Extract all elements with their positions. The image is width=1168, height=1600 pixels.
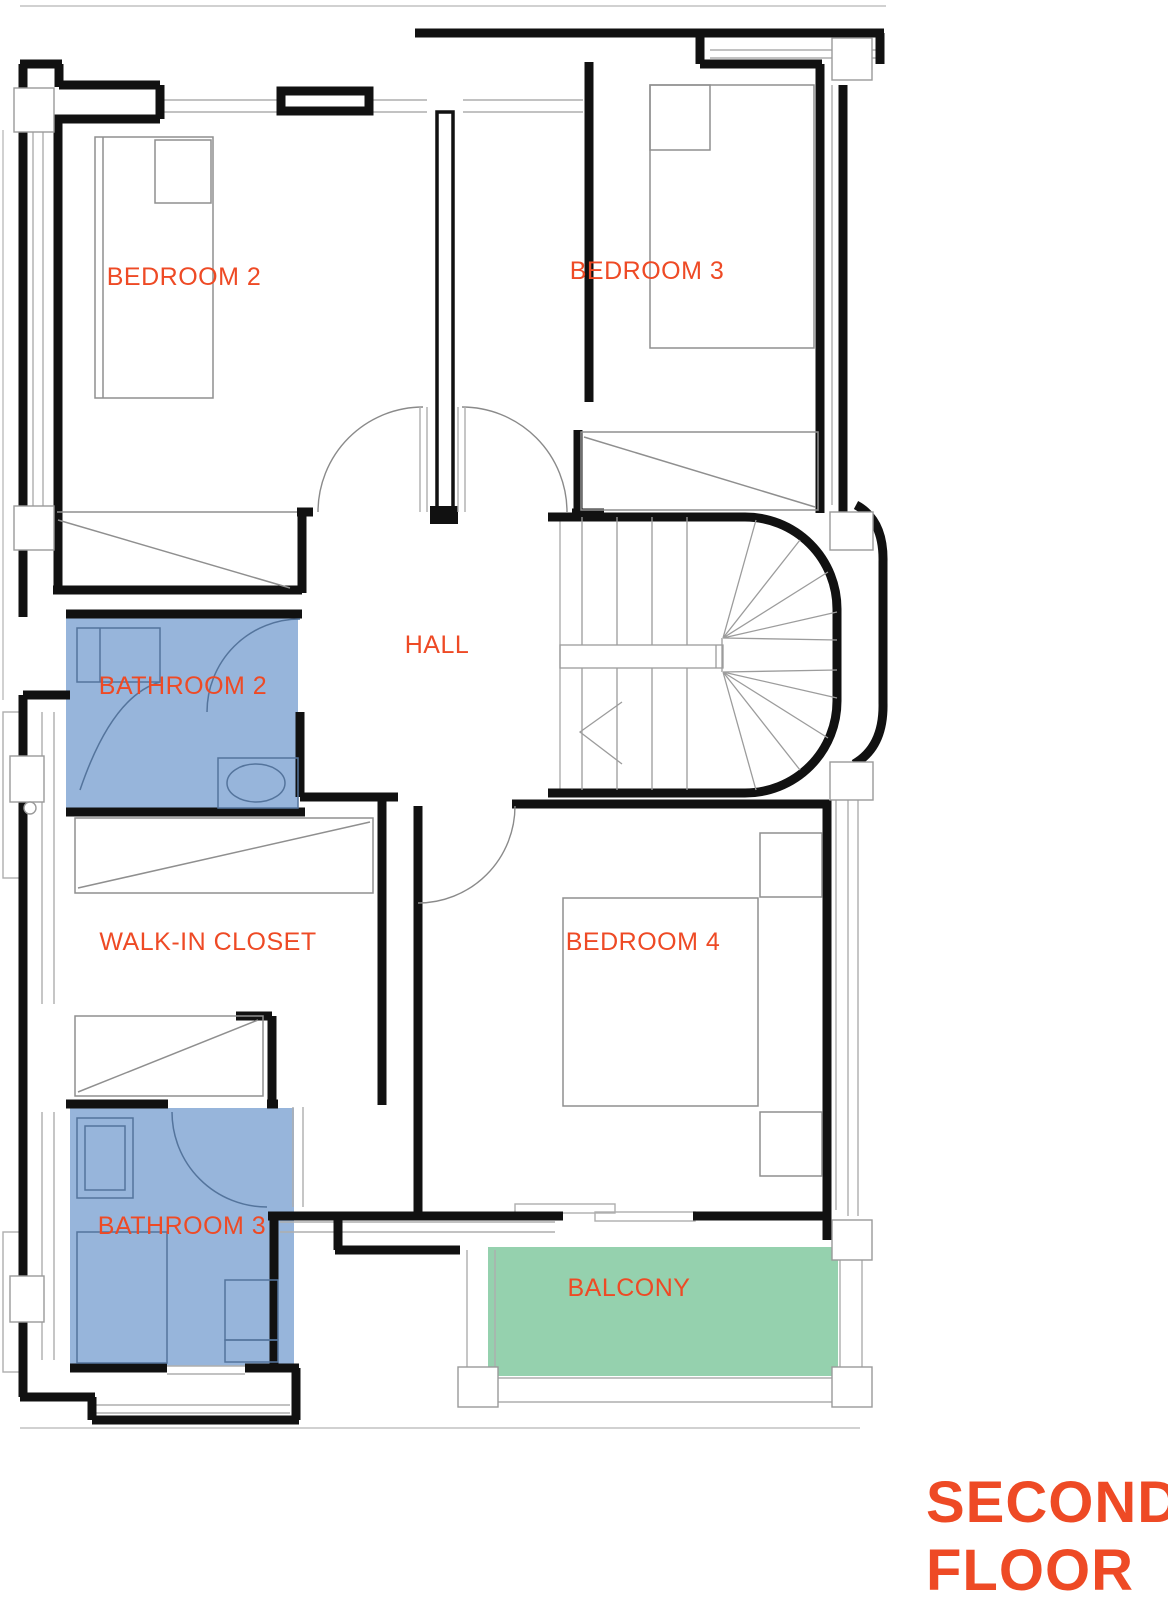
stairwell-wall (548, 517, 837, 793)
balcony-label: BALCONY (568, 1274, 691, 1302)
bedroom2-door-arc (318, 407, 423, 512)
balcony-fill (488, 1247, 838, 1376)
bedroom4-label: BEDROOM 4 (566, 928, 721, 956)
bathroom2-label: BATHROOM 2 (99, 672, 267, 700)
balcony-post (832, 1367, 872, 1407)
bathroom3-label: BATHROOM 3 (98, 1212, 266, 1240)
bed-bedroom3 (650, 85, 814, 348)
window-post (14, 506, 54, 550)
window-post (830, 512, 873, 550)
stair-landing (560, 645, 723, 668)
nightstand (760, 833, 822, 897)
window-post (830, 762, 873, 800)
window-post (832, 38, 872, 80)
plan-title-line1: SECOND (926, 1470, 1168, 1535)
window-post (14, 88, 54, 132)
window-post (10, 756, 44, 802)
bedroom2-label: BEDROOM 2 (107, 263, 262, 291)
balcony-post (458, 1367, 498, 1407)
walkin-closet-label: WALK-IN CLOSET (99, 928, 316, 956)
window-post (10, 1276, 44, 1322)
pillow-bedroom3 (650, 85, 710, 150)
hall-label: HALL (405, 631, 470, 659)
plan-title: SECOND FLOOR (926, 1470, 1168, 1600)
closet-bedroom3 (581, 432, 818, 510)
bedroom3-door-arc (462, 407, 567, 512)
nightstand (760, 1112, 822, 1176)
bedroom3-label: BEDROOM 3 (570, 257, 725, 285)
bathroom2-fill (66, 618, 298, 810)
balcony-post (832, 1220, 872, 1260)
room-fills (66, 618, 838, 1376)
wall-slab (281, 91, 369, 111)
divider-wall-foot (430, 506, 458, 524)
stair-direction-arrow (580, 702, 622, 764)
floor-plan-canvas: BEDROOM 2 BEDROOM 3 HALL BATHROOM 2 WALK… (0, 0, 1168, 1600)
fixture-dot (24, 802, 36, 814)
divider-wall (437, 112, 453, 512)
pillow-bedroom2 (155, 140, 211, 203)
staircase (560, 517, 837, 790)
bedroom4-door-arc (418, 806, 515, 903)
plan-title-line2: FLOOR (926, 1538, 1134, 1600)
wardrobe-bedroom2 (57, 512, 297, 588)
